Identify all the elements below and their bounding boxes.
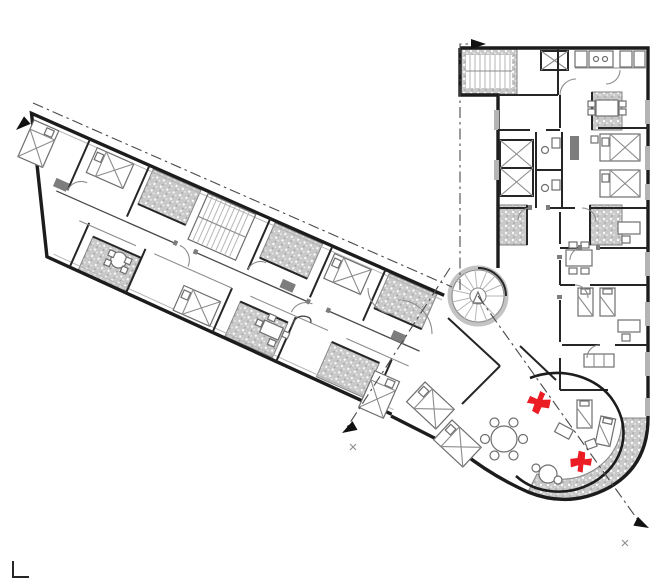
left-wing xyxy=(0,113,444,420)
section-arrow-icon xyxy=(633,517,651,533)
floor-plan-drawing xyxy=(0,0,671,584)
sofa xyxy=(584,354,614,367)
bed xyxy=(600,170,640,197)
balcony xyxy=(590,205,622,245)
wardrobe xyxy=(570,136,579,160)
bed xyxy=(600,134,640,161)
section-arrow-icon xyxy=(13,116,31,133)
corner-mark xyxy=(13,561,29,577)
bed xyxy=(600,288,615,316)
right-wing xyxy=(391,48,650,499)
entrance-stair xyxy=(461,49,517,94)
nightstand xyxy=(591,136,598,143)
bed xyxy=(577,400,592,428)
floor-plan-page xyxy=(0,0,671,584)
section-arrow-icon xyxy=(340,421,358,437)
bed xyxy=(578,288,593,316)
kitchen-counter xyxy=(575,51,646,68)
